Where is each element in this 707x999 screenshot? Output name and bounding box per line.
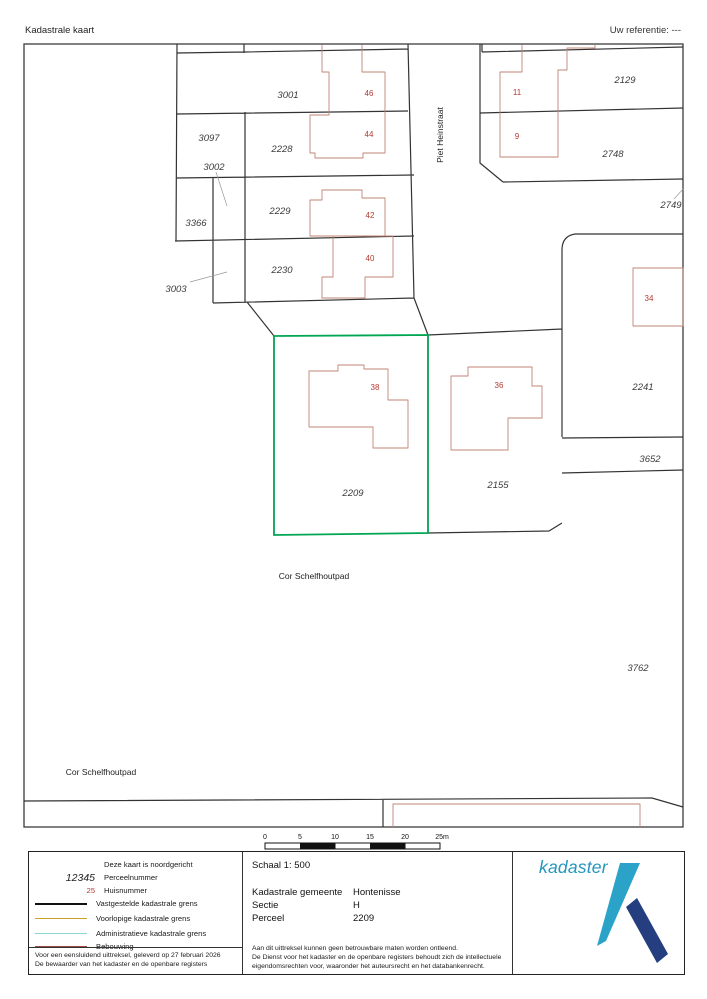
disclaimer: Aan dit uittreksel kunnen geen betrouwba… — [252, 944, 508, 972]
map-scale-label: Schaal 1: 500 — [252, 860, 310, 871]
legend-line-cyan — [35, 933, 87, 934]
scale-tick-0: 0 — [263, 834, 267, 841]
house-number-34: 34 — [645, 294, 654, 303]
parcel-label-2230: 2230 — [270, 265, 293, 276]
disclaimer-line3: eigendomsrechten voor, waaronder het aut… — [252, 962, 508, 971]
parcel-label-3652: 3652 — [639, 454, 661, 465]
house-number-42: 42 — [366, 211, 375, 220]
legend-footer: Voor een eensluidend uittreksel, gelever… — [29, 947, 242, 969]
info-label: Perceel — [252, 913, 353, 924]
disclaimer-line2: De Dienst voor het kadaster en de openba… — [252, 953, 508, 962]
parcel-label-2155: 2155 — [486, 480, 509, 491]
street-label-cor-schelfhoutpad-1: Cor Schelfhoutpad — [279, 571, 350, 581]
extract-note-line1: Voor een eensluidend uittreksel, gelever… — [35, 951, 236, 960]
legend-panel: Deze kaart is noordgericht 12345 Perceel… — [29, 852, 242, 974]
parcel-label-2229: 2229 — [268, 206, 291, 217]
legend-line-gold — [35, 918, 87, 919]
parcel-label-2228: 2228 — [270, 144, 293, 155]
extract-note-line2: De bewaarder van het kadaster en de open… — [35, 960, 236, 969]
house-number-44: 44 — [365, 130, 374, 139]
legend-label: Deze kaart is noordgericht — [104, 860, 193, 869]
legend-label: Huisnummer — [104, 886, 147, 895]
info-label: Kadastrale gemeente — [252, 887, 353, 898]
parcel-label-2241: 2241 — [631, 382, 653, 393]
scale-bar: 0 5 10 15 20 25m — [263, 834, 449, 849]
info-value: H — [353, 900, 360, 911]
house-number-40: 40 — [366, 254, 375, 263]
parcel-label-3003: 3003 — [165, 284, 187, 295]
parcel-label-3366: 3366 — [185, 218, 207, 229]
street-label-cor-schelfhoutpad-2: Cor Schelfhoutpad — [66, 767, 137, 777]
house-number-38: 38 — [371, 383, 380, 392]
house-number-36: 36 — [495, 381, 504, 390]
parcel-label-2209: 2209 — [341, 488, 364, 499]
legend-label: Administratieve kadastrale grens — [96, 929, 206, 938]
legend-symbol-house-number: 25 — [35, 885, 104, 896]
cadastral-map: 3001 3097 2228 3002 2229 3366 2230 3003 … — [0, 0, 707, 999]
legend-row-established-boundary: Vastgestelde kadastrale grens — [35, 897, 238, 910]
house-number-9: 9 — [515, 132, 520, 141]
footer-box: Deze kaart is noordgericht 12345 Perceel… — [28, 851, 685, 975]
parcel-label-2749: 2749 — [659, 200, 682, 211]
info-row-section: Sectie H — [252, 899, 401, 912]
map-frame — [24, 44, 683, 827]
house-number-46: 46 — [365, 89, 374, 98]
scale-tick-10: 10 — [331, 834, 339, 841]
legend-line-black — [35, 903, 87, 905]
legend-row-parcel-number: 12345 Perceelnummer — [35, 871, 238, 884]
legend-label: Perceelnummer — [104, 873, 158, 882]
parcel-label-3002: 3002 — [203, 162, 225, 173]
kadaster-wordmark: kadaster — [539, 857, 608, 878]
legend-row-administrative-boundary: Administratieve kadastrale grens — [35, 927, 238, 940]
scale-tick-20: 20 — [401, 834, 409, 841]
house-number-11: 11 — [513, 88, 522, 97]
parcel-info-table: Kadastrale gemeente Hontenisse Sectie H … — [252, 886, 401, 925]
info-label: Sectie — [252, 900, 353, 911]
legend-row-north: Deze kaart is noordgericht — [35, 858, 238, 871]
kadastral-extract-page: { "header": { "title": "Kadastrale kaart… — [0, 0, 707, 999]
info-row-parcel: Perceel 2209 — [252, 912, 401, 925]
legend-row-house-number: 25 Huisnummer — [35, 884, 238, 897]
info-row-municipality: Kadastrale gemeente Hontenisse — [252, 886, 401, 899]
info-value: 2209 — [353, 913, 374, 924]
disclaimer-line1: Aan dit uittreksel kunnen geen betrouwba… — [252, 944, 508, 953]
parcel-label-3762: 3762 — [627, 663, 649, 674]
parcel-label-3001: 3001 — [277, 90, 298, 101]
scale-tick-5: 5 — [298, 834, 302, 841]
parcel-label-2129: 2129 — [613, 75, 636, 86]
info-panel: Schaal 1: 500 Kadastrale gemeente Honten… — [242, 852, 512, 974]
legend-label: Vastgestelde kadastrale grens — [96, 899, 198, 908]
info-value: Hontenisse — [353, 887, 401, 898]
scale-tick-25m: 25m — [435, 834, 449, 841]
parcel-label-3097: 3097 — [198, 133, 220, 144]
legend-symbol-parcel-number: 12345 — [35, 872, 104, 884]
scale-tick-15: 15 — [366, 834, 374, 841]
logo-panel: kadaster — [512, 852, 684, 974]
legend-label: Voorlopige kadastrale grens — [96, 914, 190, 923]
legend-row-provisional-boundary: Voorlopige kadastrale grens — [35, 912, 238, 925]
street-label-piet-heinstraat: Piet Heinstraat — [435, 106, 445, 162]
parcel-label-2748: 2748 — [601, 149, 624, 160]
